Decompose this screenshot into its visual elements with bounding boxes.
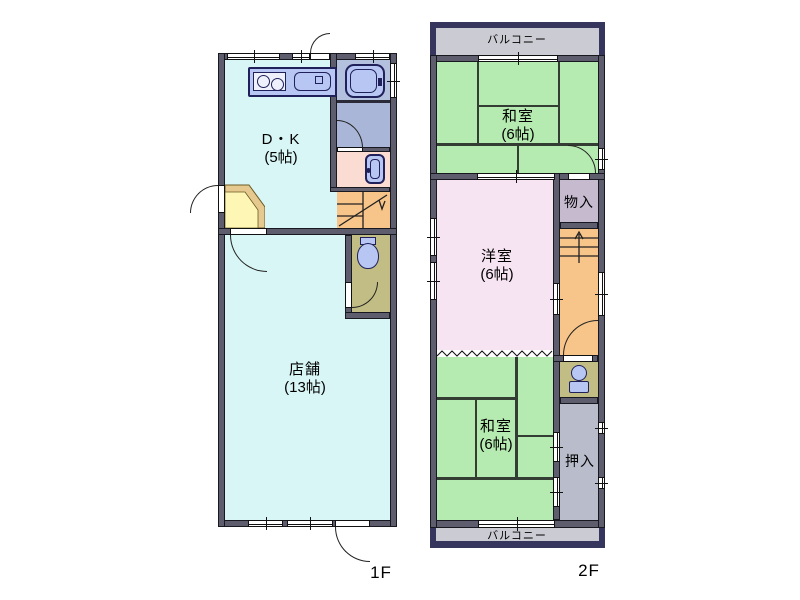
room-size: (6帖): [480, 266, 513, 284]
floor-label-1f: 1F: [370, 563, 392, 583]
wall: [337, 100, 390, 103]
floor-label-2f: 2F: [578, 561, 600, 581]
window: [390, 63, 397, 98]
room-size: (6帖): [501, 126, 534, 144]
toilet-icon: [569, 365, 589, 394]
oshiire-sliding-door: [553, 477, 560, 507]
door-opening-monoire: [568, 173, 590, 180]
window: [598, 272, 605, 316]
room-label-washitsu-upper: 和室 (6帖): [501, 108, 534, 144]
accordion-partition-icon: [437, 350, 553, 357]
window: [287, 520, 333, 527]
wall: [553, 173, 560, 520]
wall: [390, 53, 397, 527]
stairs-down-arrow-icon: [379, 200, 385, 209]
faucet-icon: [366, 168, 371, 173]
door-opening-entry: [218, 185, 225, 213]
room-label-monoire: 物入: [564, 192, 594, 212]
stairs-2f-pattern: [560, 229, 598, 267]
burner-icon: [271, 78, 284, 91]
window: [430, 262, 437, 300]
genkan-entry: [225, 183, 265, 228]
room-label-oshiire: 押入: [565, 451, 595, 471]
balcony-bottom-label: バルコニー: [487, 527, 547, 543]
window: [478, 55, 558, 62]
room-name: 和室: [479, 418, 512, 436]
door-opening-toilet-1f: [345, 282, 352, 308]
room-label-shop: 店舗 (13帖): [284, 361, 326, 397]
oshiire-sliding-door: [553, 432, 560, 462]
wall: [345, 312, 390, 319]
stairs-1f: [337, 192, 390, 228]
tatami-line: [437, 477, 553, 480]
hall-opening: [553, 283, 560, 315]
washbasin-inner: [370, 159, 380, 179]
toilet-bowl: [571, 365, 587, 381]
wall: [330, 187, 390, 192]
window: [598, 148, 605, 170]
kitchen-sink-icon: [294, 72, 331, 91]
tatami-line: [517, 146, 519, 173]
floor-plan-2f: バルコニー バルコニー 和室 (6帖) 洋室 (6帖) 和室 (6帖) 物入 押…: [430, 22, 605, 548]
door-arc: [190, 185, 218, 213]
tatami-line: [479, 105, 558, 107]
bathtub-inner: [350, 69, 377, 93]
wall: [218, 53, 225, 527]
window: [430, 218, 437, 256]
wall: [560, 397, 598, 404]
room-name: 洋室: [480, 248, 513, 266]
tatami-line: [475, 400, 477, 477]
kitchen-counter: [248, 67, 337, 97]
toilet-icon: [356, 237, 380, 271]
tatami-line: [558, 62, 560, 143]
sliding-door-opening: [477, 173, 555, 180]
door-arc: [310, 33, 330, 53]
window: [355, 53, 390, 60]
room-size: (5帖): [262, 149, 301, 167]
stairs-1f-pattern: [337, 192, 390, 228]
balcony-top-label: バルコニー: [487, 31, 547, 47]
room-label-yoshitsu: 洋室 (6帖): [480, 248, 513, 284]
tatami-line: [437, 397, 518, 400]
window: [248, 520, 283, 527]
wall: [560, 222, 598, 229]
washbasin-icon: [365, 154, 385, 184]
window: [292, 53, 310, 60]
door-opening-toilet-2f: [563, 355, 593, 362]
room-name: 和室: [501, 108, 534, 126]
window: [227, 53, 280, 60]
room-size: (13帖): [284, 379, 326, 397]
toilet-tank: [569, 381, 589, 393]
room-label-washitsu-lower: 和室 (6帖): [479, 418, 512, 454]
room-name: D・K: [262, 131, 301, 149]
floor-plan-1f: D・K (5帖) 店舗 (13帖): [218, 53, 397, 527]
tatami-line: [477, 62, 479, 143]
room-size: (6帖): [479, 436, 512, 454]
room-name: 店舗: [284, 361, 326, 379]
window: [598, 477, 605, 489]
burner-icon: [257, 75, 270, 88]
door-opening-dk-shop: [230, 228, 267, 235]
room-label-dk: D・K (5帖): [262, 131, 301, 167]
bathtub-icon: [345, 64, 385, 98]
tatami-line: [515, 357, 518, 480]
window: [598, 422, 605, 434]
door-opening-shop-exit: [335, 520, 370, 527]
door-arc: [335, 527, 370, 562]
floorplan-canvas: D・K (5帖) 店舗 (13帖): [0, 0, 800, 600]
tatami-line: [518, 435, 553, 437]
kitchen-stove-icon: [253, 72, 286, 91]
faucet-icon: [378, 78, 382, 86]
toilet-bowl: [357, 243, 379, 269]
door-opening-backdoor: [310, 53, 330, 60]
faucet-icon: [315, 76, 323, 84]
